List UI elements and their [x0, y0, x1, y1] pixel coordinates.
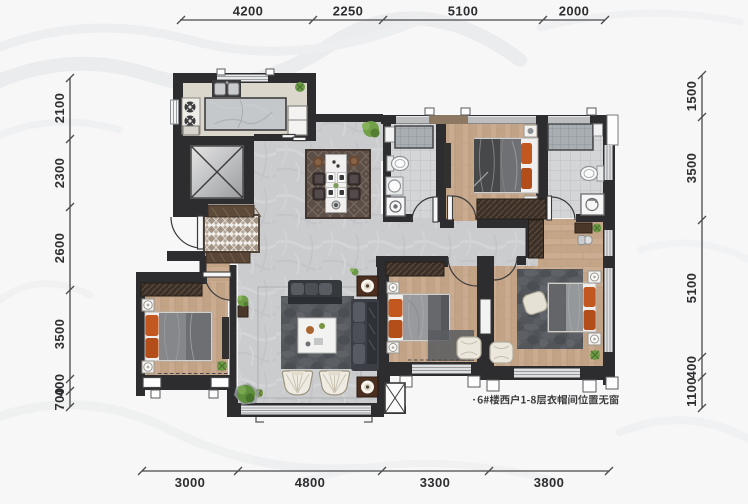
svg-text:5100: 5100: [448, 4, 479, 19]
svg-text:2300: 2300: [52, 158, 67, 189]
svg-text:3800: 3800: [534, 475, 565, 490]
svg-text:4800: 4800: [295, 475, 326, 490]
svg-text:700: 700: [52, 388, 67, 411]
svg-text:3500: 3500: [684, 153, 699, 184]
svg-text:2000: 2000: [559, 4, 590, 19]
svg-text:3500: 3500: [52, 319, 67, 350]
svg-text:2250: 2250: [333, 4, 364, 19]
svg-text:4200: 4200: [233, 4, 264, 19]
svg-text:1500: 1500: [684, 81, 699, 112]
svg-text:3300: 3300: [420, 475, 451, 490]
svg-text:2100: 2100: [52, 93, 67, 124]
svg-text:2600: 2600: [52, 233, 67, 264]
svg-text:5100: 5100: [684, 273, 699, 304]
svg-text:400: 400: [684, 356, 699, 379]
svg-text:1100: 1100: [684, 377, 699, 407]
svg-text:3000: 3000: [175, 475, 206, 490]
